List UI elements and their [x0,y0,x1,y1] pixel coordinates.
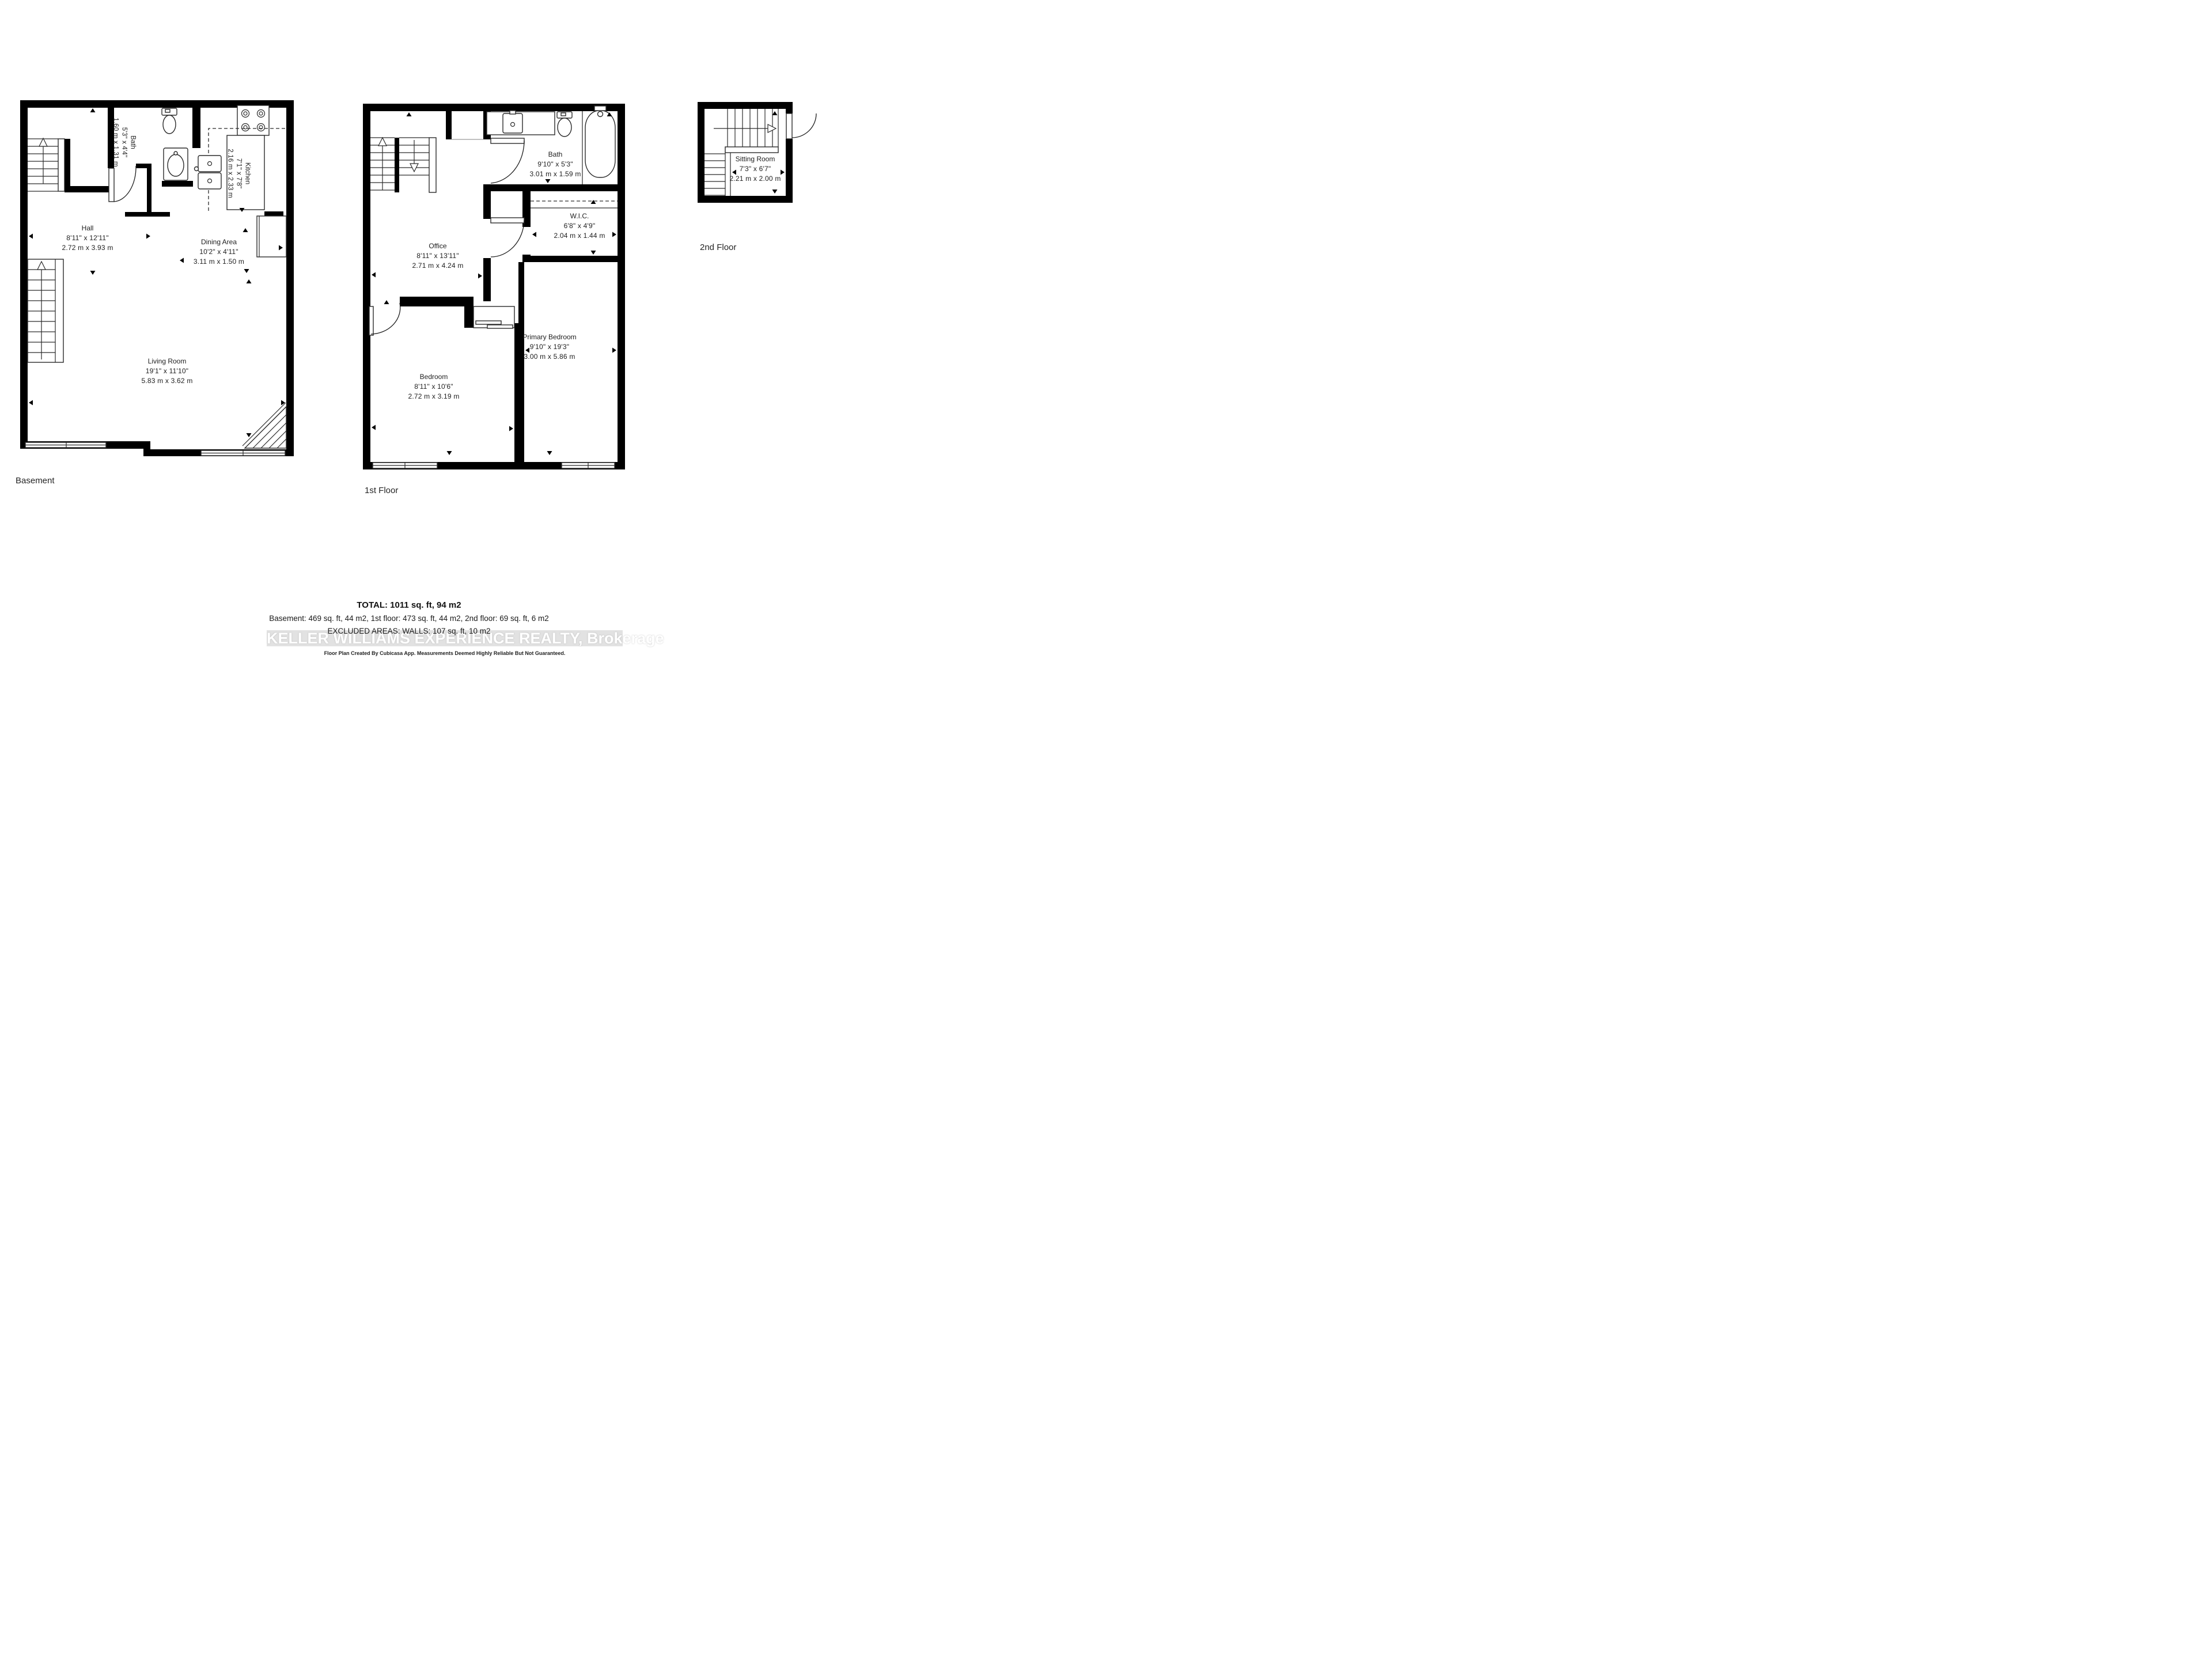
room-name: Bath [128,118,137,166]
second-floor-plan: Sitting Room 7'3" x 6'7" 2.21 m x 2.00 m [698,102,819,206]
room-dim-imperial: 8'11" x 10'6" [408,382,459,392]
room-dim-metric: 1.60 m x 1.31 m [111,118,120,166]
door-icon [491,138,524,183]
room-dim-imperial: 8'11" x 12'11" [62,233,113,243]
room-name: Bath [529,150,581,160]
room-name: Sitting Room [729,154,781,164]
room-name: Office [412,241,463,251]
window-icon [25,442,106,448]
stairs-icon [28,138,65,191]
stairs-icon [28,259,63,362]
room-label-bedroom: Bedroom 8'11" x 10'6" 2.72 m x 3.19 m [408,372,459,402]
room-dim-imperial: 7'1" x 7'8" [234,149,243,198]
fridge-icon [257,216,286,257]
room-dim-metric: 3.01 m x 1.59 m [529,169,581,179]
room-dim-imperial: 9'10" x 19'3" [522,342,576,352]
kitchen-sink-icon [195,156,222,189]
basement-plan-drawing [20,100,294,457]
stairs-icon [370,138,436,192]
floor-plan-page: Hall 8'11" x 12'11" 2.72 m x 3.93 m Bath… [0,0,890,668]
second-floor-plan-drawing [698,102,819,206]
room-dim-imperial: 5'3" x 4'4" [120,118,128,166]
room-dim-metric: 2.72 m x 3.93 m [62,243,113,253]
excluded-areas-text: EXCLUDED AREAS: WALLS: 107 sq. ft, 10 m2 [327,627,490,635]
toilet-icon [162,108,177,134]
room-dim-metric: 2.72 m x 3.19 m [408,392,459,402]
room-label-sitting-room: Sitting Room 7'3" x 6'7" 2.21 m x 2.00 m [729,154,781,184]
room-label-dining-area: Dining Area 10'2" x 4'11" 3.11 m x 1.50 … [194,237,244,267]
room-name: Primary Bedroom [522,332,576,342]
total-area-text: TOTAL: 1011 sq. ft, 94 m2 [357,600,461,610]
room-dim-imperial: 9'10" x 5'3" [529,160,581,169]
first-floor-plan-drawing [363,104,625,469]
room-name: W.I.C. [554,211,605,221]
room-dim-imperial: 7'3" x 6'7" [729,164,781,174]
stove-icon [237,105,269,135]
door-icon [369,303,400,335]
closet-icon [474,306,514,328]
disclaimer-text: Floor Plan Created By Cubicasa App. Meas… [324,650,566,656]
room-label-bath-basement: Bath 5'3" x 4'4" 1.60 m x 1.31 m [111,118,137,166]
bathroom-sink-icon [487,111,555,135]
hatched-area [243,403,286,448]
room-dim-metric: 2.21 m x 2.00 m [729,174,781,184]
floor-label-basement: Basement [16,476,55,486]
toilet-icon [557,112,572,137]
room-label-bath: Bath 9'10" x 5'3" 3.01 m x 1.59 m [529,150,581,179]
room-name: Dining Area [194,237,244,247]
closet-rod [531,201,618,208]
room-name: Bedroom [408,372,459,382]
room-dim-metric: 2.71 m x 4.24 m [412,261,463,271]
room-label-kitchen: Kitchen 7'1" x 7'8" 2.16 m x 2.33 m [226,149,252,198]
window-icon [201,450,285,456]
door-icon [786,113,816,139]
window-icon [562,463,615,468]
floor-label-first-floor: 1st Floor [365,486,398,495]
room-label-wic: W.I.C. 6'8" x 4'9" 2.04 m x 1.44 m [554,211,605,241]
bathroom-sink-icon [164,148,188,180]
bathtub-icon [582,106,615,184]
first-floor-plan: Bath 9'10" x 5'3" 3.01 m x 1.59 m W.I.C.… [363,104,625,469]
window-icon [373,463,437,468]
door-icon [109,166,136,202]
room-label-hall: Hall 8'11" x 12'11" 2.72 m x 3.93 m [62,224,113,253]
room-name: Living Room [141,357,192,366]
room-name: Kitchen [243,149,252,198]
room-label-office: Office 8'11" x 13'11" 2.71 m x 4.24 m [412,241,463,271]
basement-plan: Hall 8'11" x 12'11" 2.72 m x 3.93 m Bath… [20,100,294,457]
room-label-living-room: Living Room 19'1" x 11'10" 5.83 m x 3.62… [141,357,192,386]
room-dim-metric: 2.04 m x 1.44 m [554,231,605,241]
room-dim-metric: 5.83 m x 3.62 m [141,376,192,386]
room-dim-imperial: 8'11" x 13'11" [412,251,463,261]
area-breakdown-text: Basement: 469 sq. ft, 44 m2, 1st floor: … [269,614,549,623]
room-label-primary-bedroom: Primary Bedroom 9'10" x 19'3" 3.00 m x 5… [522,332,576,362]
room-dim-imperial: 10'2" x 4'11" [194,247,244,257]
room-dim-metric: 3.11 m x 1.50 m [194,257,244,267]
room-dim-metric: 3.00 m x 5.86 m [522,352,576,362]
door-icon [491,218,524,257]
floor-label-second-floor: 2nd Floor [700,243,736,252]
room-name: Hall [62,224,113,233]
room-dim-imperial: 19'1" x 11'10" [141,366,192,376]
room-dim-metric: 2.16 m x 2.33 m [226,149,234,198]
room-dim-imperial: 6'8" x 4'9" [554,221,605,231]
